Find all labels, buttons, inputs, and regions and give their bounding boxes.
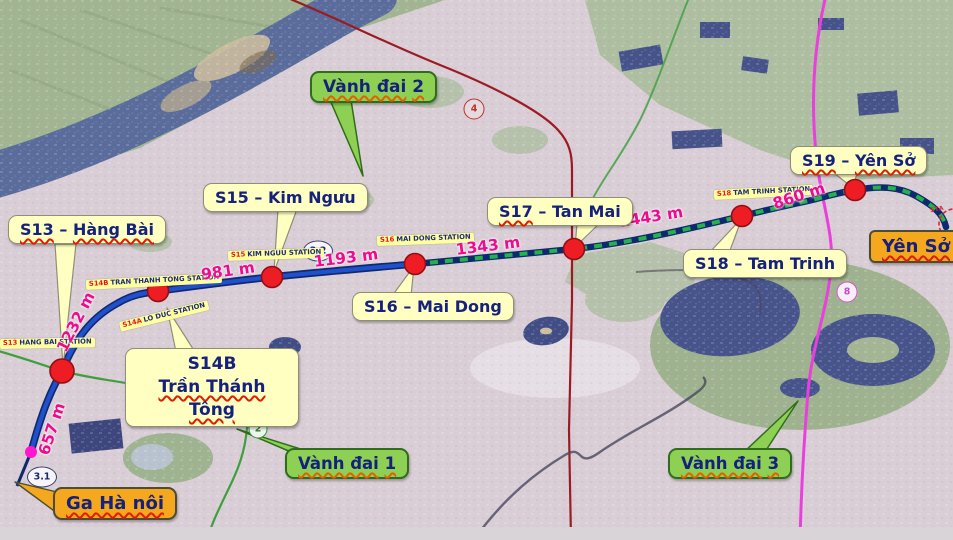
callout-s18-tam-trinh: S18 – Tam Trinh bbox=[683, 249, 847, 278]
callout-sep: – bbox=[398, 297, 417, 316]
hanoi-metro-line3-route-map: S13HANG BAI STATION S14BTRAN THANH TONG … bbox=[0, 0, 953, 540]
callout-text: Yên Sở bbox=[882, 236, 950, 257]
callout-text: 2 bbox=[412, 77, 424, 97]
map-tag-prefix: S14B bbox=[89, 279, 109, 288]
road-marker-4: 4 bbox=[464, 99, 485, 120]
callout-text: S17 bbox=[499, 202, 533, 221]
callout-text: 1 bbox=[385, 454, 396, 473]
callout-text: S16 bbox=[364, 297, 398, 316]
callout-text: Hàng Bài bbox=[73, 220, 154, 239]
callout-s13-hang-bai: S13 – Hàng Bài bbox=[8, 215, 166, 244]
station-dot-s17 bbox=[564, 239, 585, 260]
callout-sep: – bbox=[54, 220, 73, 239]
callout-text: Tam Trinh bbox=[748, 254, 835, 273]
callout-text: Vành đai bbox=[681, 454, 762, 473]
callout-text: Tan Mai bbox=[552, 202, 621, 221]
map-tag-prefix: S16 bbox=[380, 235, 395, 243]
callout-text: S14B bbox=[188, 354, 237, 374]
station-dot-s18 bbox=[732, 206, 753, 227]
bottom-strip bbox=[0, 527, 953, 540]
map-tag-name: KIM NGUU STATION bbox=[247, 248, 321, 259]
map-tag-prefix: S13 bbox=[3, 339, 17, 347]
callout-s15-kim-nguu: S15 – Kim Ngưu bbox=[203, 183, 368, 212]
callout-ring-road-2: Vành đai 2 bbox=[310, 71, 437, 103]
callout-text: Vành đai bbox=[298, 454, 379, 473]
callout-s16-mai-dong: S16 – Mai Dong bbox=[352, 292, 514, 321]
callout-text: S18 bbox=[695, 254, 729, 273]
callout-sep: – bbox=[533, 202, 552, 221]
callout-text: S13 bbox=[20, 220, 54, 239]
map-tag-s13-hang-bai: S13HANG BAI STATION bbox=[0, 337, 95, 348]
callout-text: Ga Hà nôi bbox=[66, 493, 164, 514]
station-dot-s15 bbox=[262, 267, 283, 288]
callout-text: Vành đai bbox=[323, 77, 406, 97]
station-dot-s19 bbox=[845, 180, 866, 201]
road-marker-3-1: 3.1 bbox=[27, 467, 57, 488]
callout-text: Mai Dong bbox=[417, 297, 502, 316]
callout-text: S15 bbox=[215, 188, 249, 207]
callout-text: S19 bbox=[802, 151, 836, 170]
callout-text: Trần Thánh Tông bbox=[159, 377, 266, 420]
callout-text: Yên Sở bbox=[855, 151, 915, 170]
map-tag-prefix: S15 bbox=[231, 250, 246, 258]
callout-yen-so: Yên Sở bbox=[869, 230, 953, 263]
station-dot-s16 bbox=[405, 254, 426, 275]
callout-sep: – bbox=[836, 151, 855, 170]
callout-s14b-tran-thanh-tong: S14B Trần Thánh Tông bbox=[125, 348, 299, 427]
callout-s19-yen-so: S19 – Yên Sở bbox=[790, 146, 927, 175]
callout-text: Kim Ngưu bbox=[268, 188, 356, 207]
callout-text: 3 bbox=[768, 454, 779, 473]
callout-sep: – bbox=[249, 188, 268, 207]
road-marker-8: 8 bbox=[837, 282, 858, 303]
callout-s17-tan-mai: S17 – Tan Mai bbox=[487, 197, 633, 226]
map-tag-prefix: S18 bbox=[717, 189, 732, 198]
station-dot-s13 bbox=[50, 359, 74, 383]
callout-ring-road-3: Vành đai 3 bbox=[668, 448, 792, 479]
callout-ga-ha-noi: Ga Hà nôi bbox=[53, 487, 177, 520]
callout-sep: – bbox=[729, 254, 748, 273]
callout-ring-road-1: Vành đai 1 bbox=[285, 448, 409, 479]
